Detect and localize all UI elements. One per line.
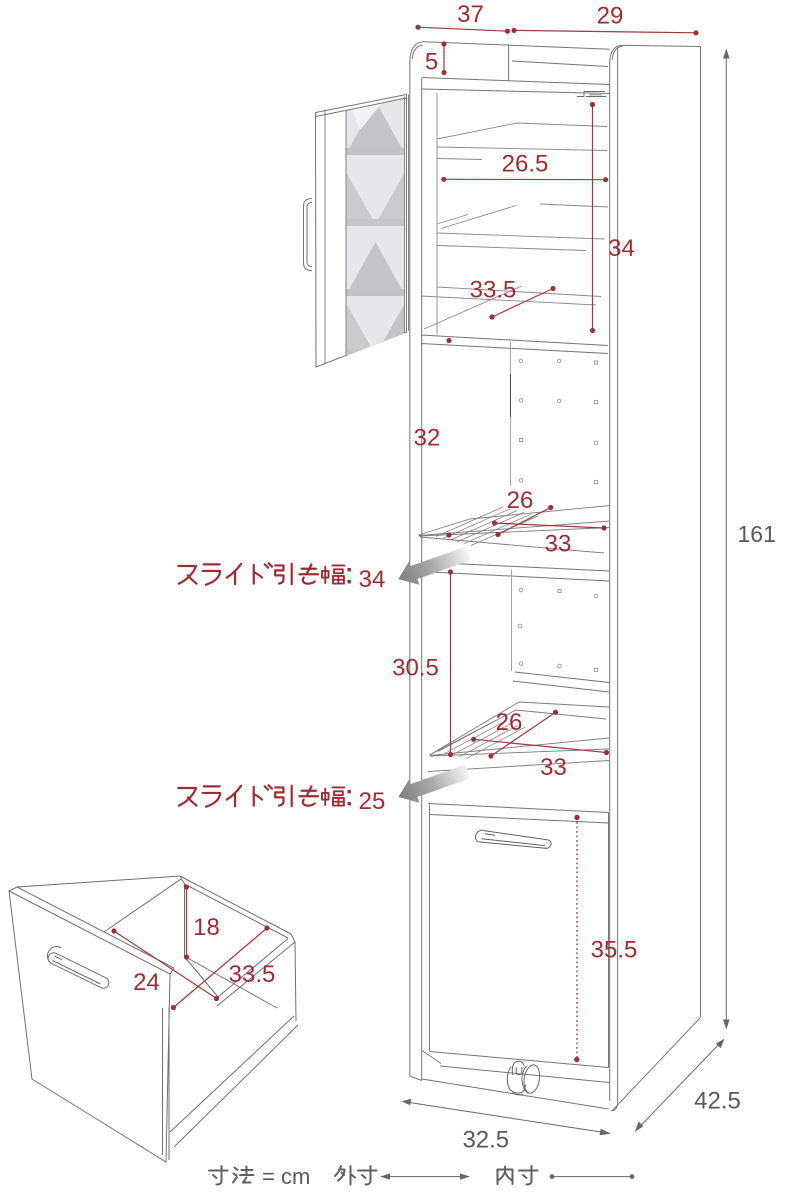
svg-text:18: 18 xyxy=(193,914,220,941)
svg-text:26.5: 26.5 xyxy=(502,151,549,178)
svg-text:30.5: 30.5 xyxy=(392,655,439,682)
svg-text:29: 29 xyxy=(597,3,624,30)
svg-text:26: 26 xyxy=(496,709,523,736)
svg-text:25: 25 xyxy=(359,788,386,815)
svg-text:33.5: 33.5 xyxy=(229,961,276,988)
svg-text:32: 32 xyxy=(414,425,441,452)
svg-text:34: 34 xyxy=(608,235,635,262)
svg-text:= cm: = cm xyxy=(262,1164,310,1189)
svg-text:42.5: 42.5 xyxy=(694,1088,741,1115)
svg-text:35.5: 35.5 xyxy=(591,937,638,964)
svg-text:32.5: 32.5 xyxy=(462,1127,509,1154)
svg-text:24: 24 xyxy=(133,969,160,996)
svg-text:33.5: 33.5 xyxy=(470,277,517,304)
svg-text:161: 161 xyxy=(738,521,776,547)
svg-text:37: 37 xyxy=(457,1,484,28)
svg-text:5: 5 xyxy=(425,49,438,76)
svg-text:33: 33 xyxy=(540,754,567,781)
svg-text:33: 33 xyxy=(545,531,572,558)
svg-text:26: 26 xyxy=(507,487,534,514)
svg-text:34: 34 xyxy=(359,566,386,593)
